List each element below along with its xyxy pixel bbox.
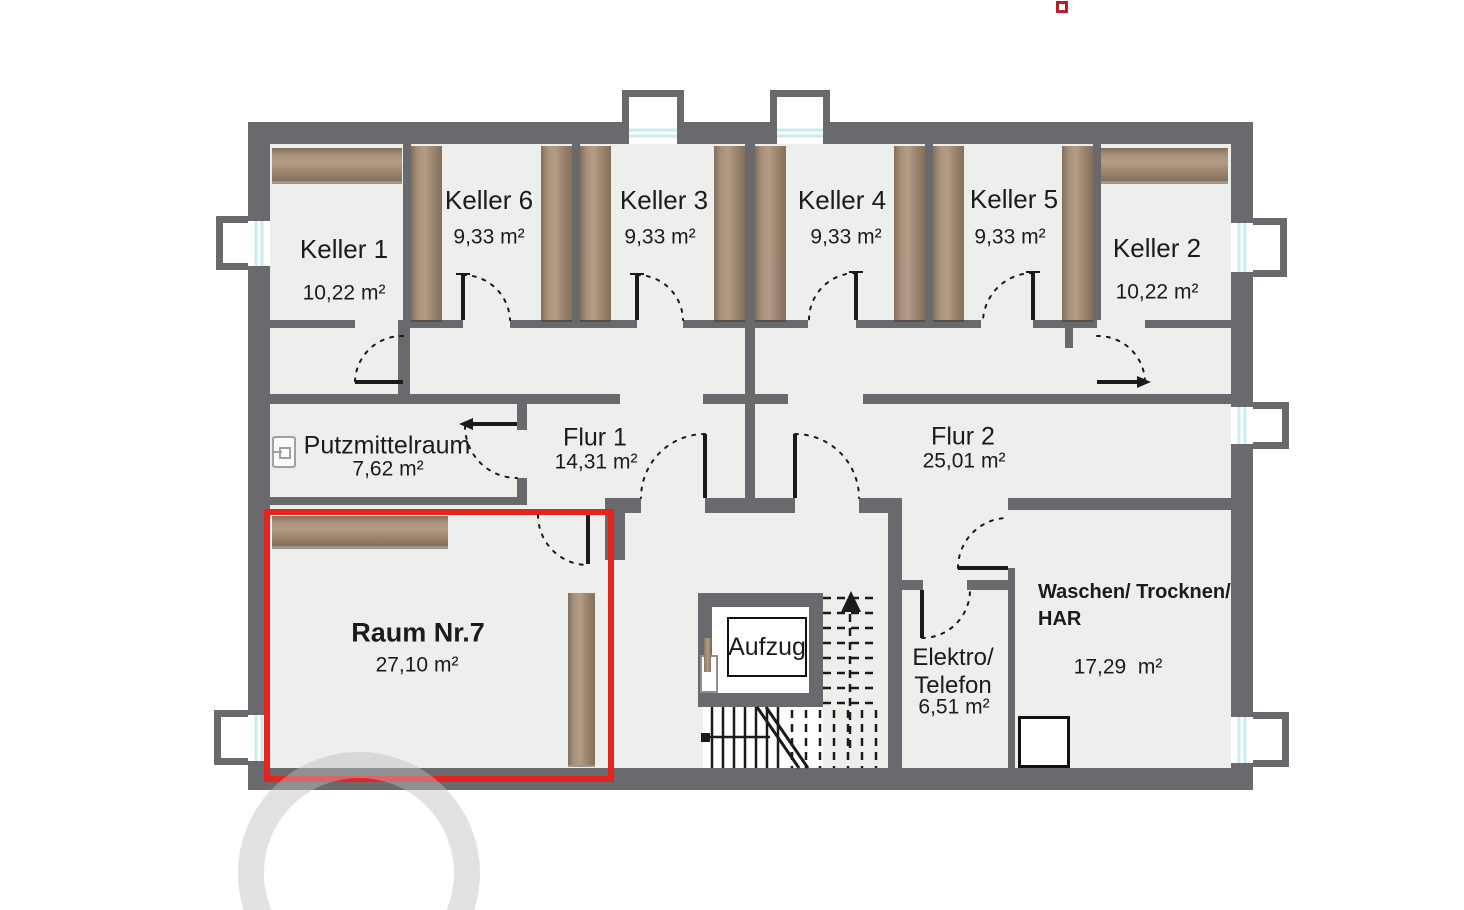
elektro-wall bbox=[967, 580, 1008, 590]
room-area-putzmittelraum: 7,62 m² bbox=[352, 459, 423, 480]
drain-symbol-icon bbox=[272, 436, 296, 468]
room-area-keller2: 10,22 m² bbox=[1116, 282, 1199, 303]
cellar-wall bbox=[1145, 320, 1231, 328]
room-area-keller3: 9,33 m² bbox=[624, 227, 695, 248]
stair-run bbox=[703, 707, 823, 768]
partition-wall bbox=[925, 144, 933, 320]
center-wall bbox=[745, 144, 755, 513]
window bbox=[248, 221, 270, 266]
shelf bbox=[1062, 146, 1093, 320]
window bbox=[1231, 407, 1253, 444]
shelf bbox=[714, 146, 745, 320]
cellar-wall bbox=[683, 320, 808, 328]
cellar-wall bbox=[1065, 328, 1073, 348]
light-well bbox=[1253, 218, 1287, 277]
room-area-keller1: 10,22 m² bbox=[303, 283, 386, 304]
room-area-flur2: 25,01 m² bbox=[923, 451, 1006, 472]
room-area-elektro: 6,51 m² bbox=[918, 697, 989, 718]
shelf bbox=[1101, 148, 1228, 181]
floor-plan: Aufzug bbox=[0, 0, 1464, 910]
light-well bbox=[770, 90, 830, 122]
room-label-putzmittelraum: Putzmittelraum bbox=[304, 434, 471, 459]
elevator-label: Aufzug bbox=[728, 633, 806, 662]
corridor-wall bbox=[863, 394, 1231, 404]
corridor-wall bbox=[703, 394, 788, 404]
window bbox=[1231, 223, 1253, 272]
corridor-wall bbox=[270, 394, 517, 404]
outer-wall-top bbox=[248, 122, 1253, 144]
drain-symbol-box bbox=[279, 447, 291, 459]
room-label-elektro-line2: Telefon bbox=[914, 674, 991, 698]
room-label-keller1: Keller 1 bbox=[300, 236, 388, 262]
red-marker-icon bbox=[1056, 1, 1068, 13]
cellar-wall bbox=[398, 320, 463, 328]
shelf bbox=[894, 146, 925, 320]
elevator-label-box: Aufzug bbox=[727, 617, 807, 677]
waschen-wall bbox=[1008, 568, 1015, 768]
light-well bbox=[622, 90, 684, 122]
window bbox=[629, 122, 677, 144]
drain-symbol-line bbox=[274, 451, 282, 453]
room-area-keller5: 9,33 m² bbox=[974, 227, 1045, 248]
shelf bbox=[933, 146, 964, 320]
shelf bbox=[272, 148, 402, 181]
room-label-keller4: Keller 4 bbox=[798, 187, 886, 213]
room-area-raum7: 27,10 m² bbox=[376, 655, 459, 676]
room-label-keller5: Keller 5 bbox=[970, 186, 1058, 212]
partition-wall bbox=[403, 144, 411, 320]
stairhall-wall bbox=[888, 498, 902, 768]
light-well bbox=[216, 216, 248, 270]
cellar-wall bbox=[270, 320, 355, 328]
putzmittelraum-wall bbox=[270, 497, 527, 505]
elektro-wall bbox=[888, 580, 923, 590]
corridor-wall bbox=[527, 394, 620, 404]
shelf bbox=[411, 146, 442, 320]
room-area-waschen: 17,29 m² bbox=[1074, 657, 1163, 678]
window bbox=[1231, 717, 1253, 763]
room-area-flur1: 14,31 m² bbox=[555, 452, 638, 473]
cellar-wall bbox=[398, 328, 410, 394]
window bbox=[777, 122, 823, 144]
partition-wall bbox=[572, 144, 580, 320]
room-label-waschen-line1: Waschen/ Trocknen/ bbox=[1038, 582, 1231, 602]
stairhall-wall bbox=[705, 498, 795, 513]
shelf bbox=[755, 146, 786, 320]
room-label-waschen-line2: HAR bbox=[1038, 609, 1081, 629]
room-label-raum7: Raum Nr.7 bbox=[351, 620, 485, 647]
light-well bbox=[214, 710, 248, 765]
putzmittelraum-wall bbox=[517, 394, 527, 430]
room-label-flur1: Flur 1 bbox=[563, 426, 627, 451]
sink-fixture bbox=[1018, 716, 1070, 768]
cellar-wall bbox=[510, 320, 637, 328]
room-label-keller2: Keller 2 bbox=[1113, 235, 1201, 261]
cellar-wall bbox=[1033, 320, 1097, 328]
light-well bbox=[1253, 712, 1289, 767]
room-label-elektro-line1: Elektro/ bbox=[912, 646, 993, 670]
room-label-flur2: Flur 2 bbox=[931, 425, 995, 450]
room-label-keller3: Keller 3 bbox=[620, 187, 708, 213]
waschen-wall bbox=[1008, 498, 1231, 510]
cellar-wall bbox=[856, 320, 981, 328]
light-well bbox=[1253, 402, 1289, 449]
shelf bbox=[541, 146, 572, 320]
room-label-keller6: Keller 6 bbox=[445, 187, 533, 213]
room-area-keller4: 9,33 m² bbox=[810, 227, 881, 248]
partition-wall bbox=[1093, 144, 1101, 320]
elevator-door-bar bbox=[704, 638, 711, 672]
shelf bbox=[580, 146, 611, 320]
room-area-keller6: 9,33 m² bbox=[453, 227, 524, 248]
